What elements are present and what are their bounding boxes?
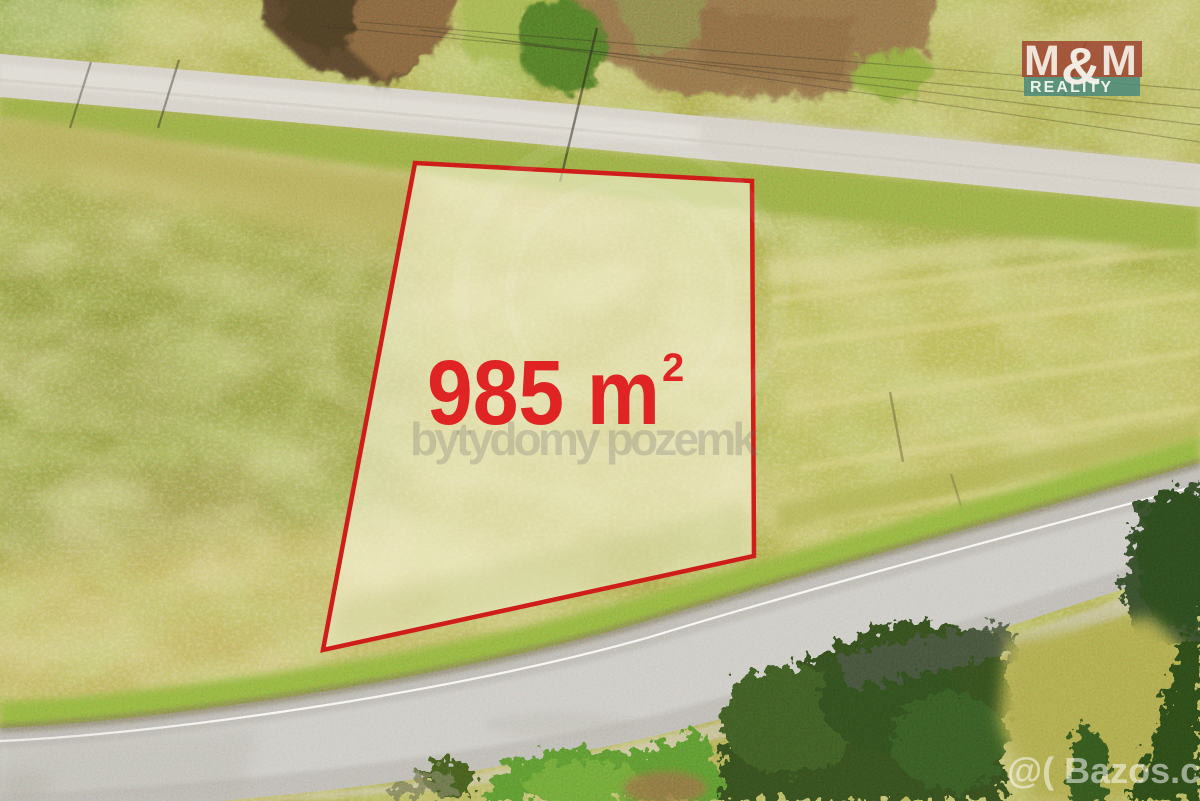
svg-text:2: 2	[662, 346, 684, 390]
svg-text:M: M	[1024, 37, 1060, 85]
svg-text:REALITY: REALITY	[1030, 79, 1113, 96]
svg-text:985 m: 985 m	[427, 342, 660, 444]
svg-text:M: M	[1101, 37, 1137, 85]
svg-text:@( Bazos.cz: @( Bazos.cz	[1007, 750, 1200, 791]
